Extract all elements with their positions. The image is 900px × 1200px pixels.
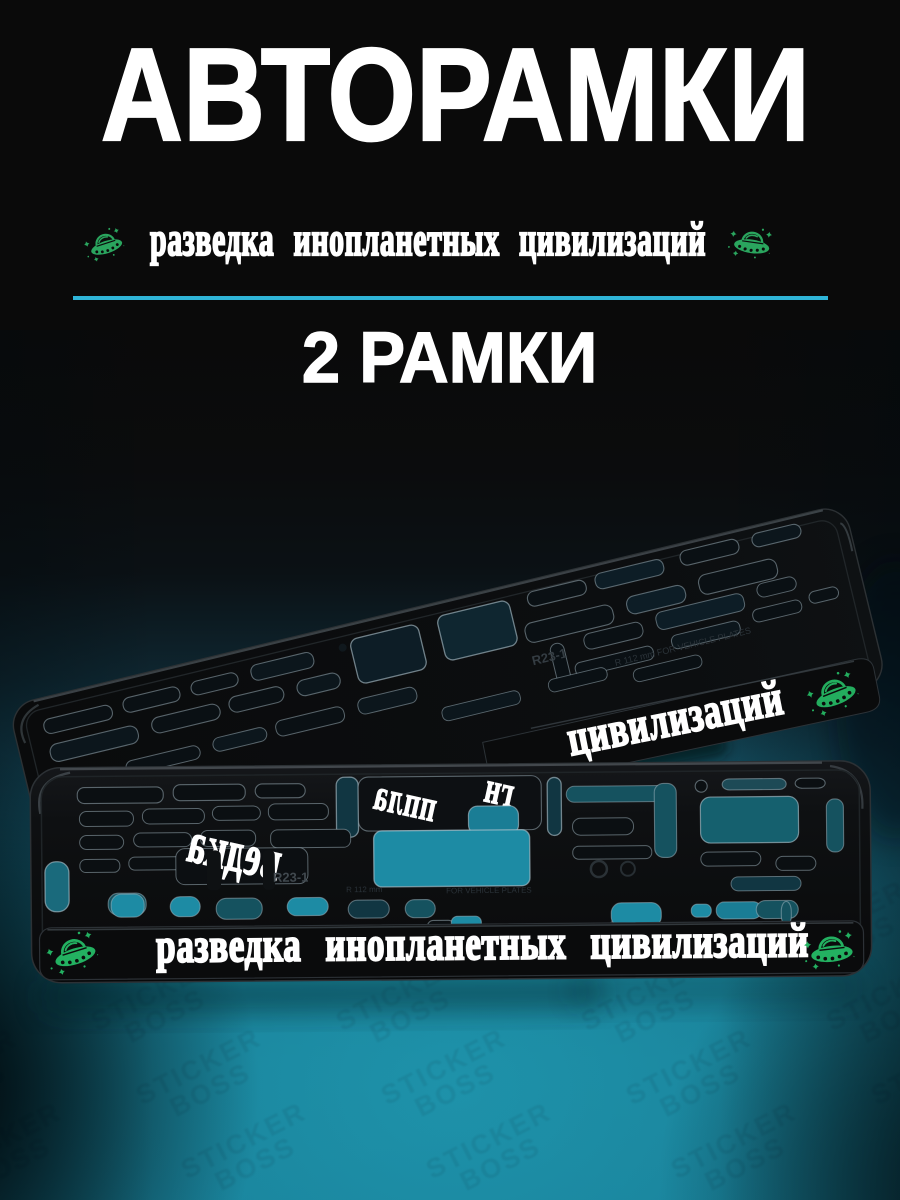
svg-text:FOR VEHICLE PLATES: FOR VEHICLE PLATES <box>446 886 532 896</box>
svg-text:разведка инопланетных цивилиза: разведка инопланетных цивилизаций <box>156 915 809 973</box>
svg-text:R 112 mm: R 112 mm <box>346 885 383 894</box>
svg-text:R23-1: R23-1 <box>273 870 309 885</box>
